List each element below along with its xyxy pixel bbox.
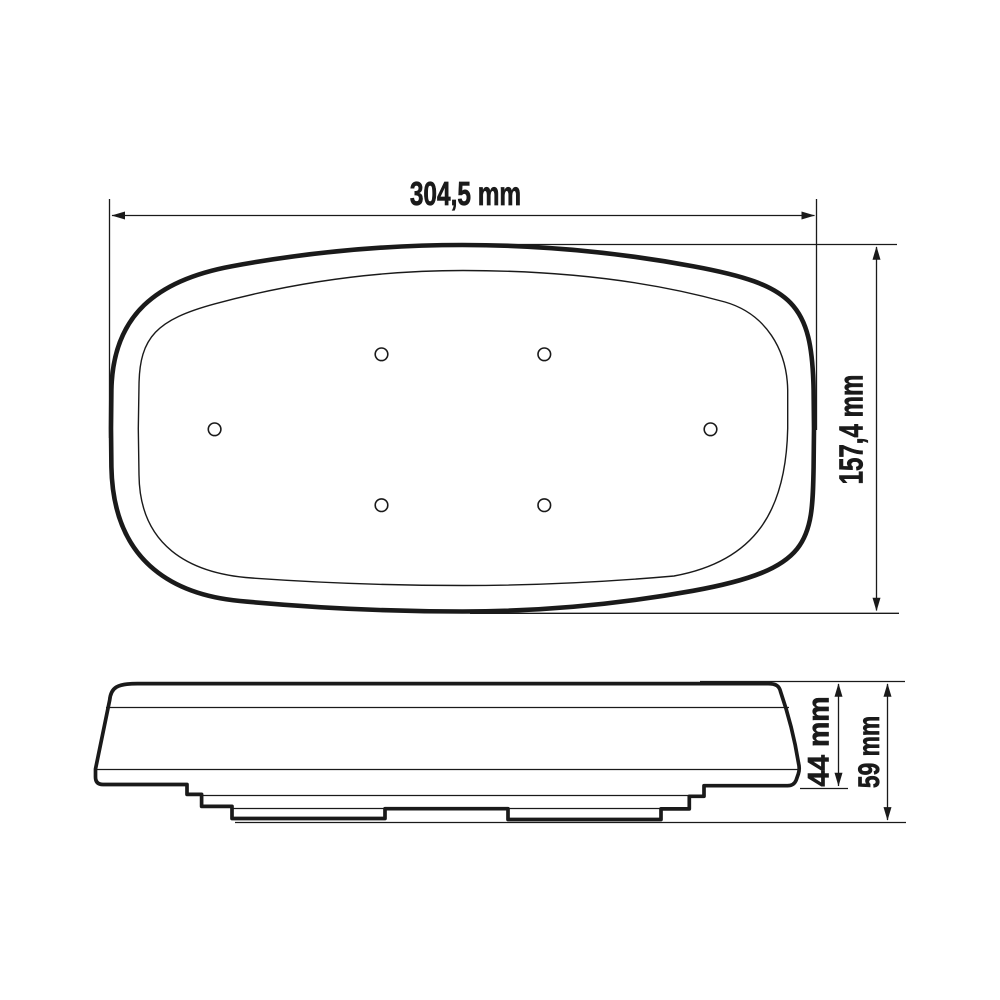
svg-text:304,5 mm: 304,5 mm xyxy=(410,177,521,213)
svg-text:44 mm: 44 mm xyxy=(803,696,836,786)
svg-text:59 mm: 59 mm xyxy=(852,716,886,788)
svg-text:157,4 mm: 157,4 mm xyxy=(834,375,871,485)
